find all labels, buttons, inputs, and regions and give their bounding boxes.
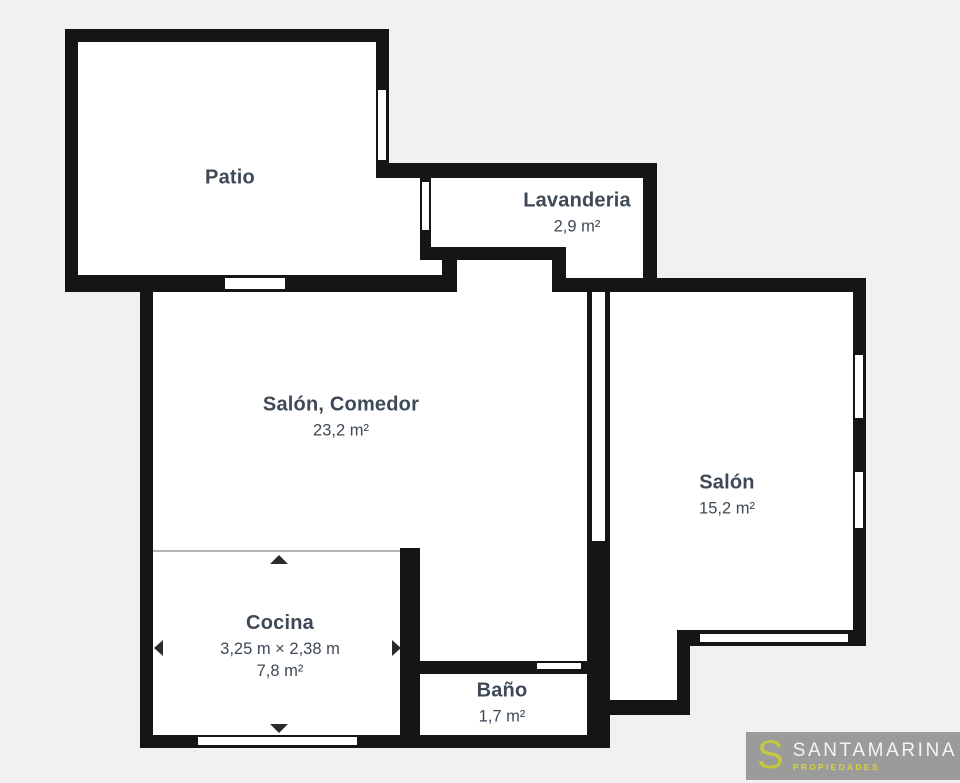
arrow-left-icon [154, 640, 163, 656]
wall-left-exterior [140, 275, 153, 748]
lavanderia-area: 2,9 m² [523, 217, 631, 238]
cocina-dimensions: 3,25 m × 2,38 m [220, 639, 340, 660]
logo-brand-name: SANTAMARINA [793, 741, 957, 760]
logo-text: SANTAMARINA PROPIEDADES [793, 741, 957, 772]
salon-area: 15,2 m² [699, 499, 755, 520]
wall-patio-left [65, 29, 78, 292]
salon-right-window-lower [855, 472, 863, 528]
floor-plan-image: { "colors": { "exterior": "#f1f1f2", "wa… [0, 0, 960, 783]
wall-salon-partition-outer [587, 290, 592, 541]
floor-plan: Patio Lavanderia 2,9 m² Salón, Comedor 2… [0, 0, 960, 783]
cocina-name: Cocina [220, 611, 340, 636]
patio-right-window [378, 90, 386, 160]
bano-name: Baño [477, 679, 528, 704]
bano-area: 1,7 m² [477, 707, 528, 728]
niche-floor [457, 260, 552, 292]
salon-name: Salón [699, 471, 755, 496]
wall-salon-partition-inner [605, 290, 610, 541]
wall-salon-top [566, 278, 866, 292]
wall-cocina-right [400, 548, 420, 735]
wall-patio-top [65, 29, 389, 42]
lavanderia-name: Lavanderia [523, 189, 631, 214]
salon-bottom-window [700, 634, 848, 642]
wall-salon-left-lower [587, 541, 610, 748]
wall-lavanderia-bottom-left [420, 247, 566, 260]
arrow-down-icon [270, 724, 288, 733]
patio-floor [78, 42, 376, 275]
bano-label: Baño 1,7 m² [477, 679, 528, 728]
cocina-label: Cocina 3,25 m × 2,38 m 7,8 m² [220, 611, 340, 681]
wall-lavanderia-right [643, 163, 657, 292]
logo-tagline: PROPIEDADES [793, 763, 957, 772]
patio-name: Patio [205, 166, 255, 191]
wall-niche-stub [442, 260, 457, 275]
salon-comedor-name: Salón, Comedor [263, 393, 419, 418]
wall-salon-right [853, 278, 866, 646]
salon-right-window-upper [855, 355, 863, 418]
salon-label: Salón 15,2 m² [699, 471, 755, 520]
bano-door [537, 663, 581, 669]
salon-comedor-label: Salón, Comedor 23,2 m² [263, 393, 419, 442]
patio-label: Patio [205, 166, 255, 191]
cocina-area: 7,8 m² [220, 661, 340, 682]
wall-lavanderia-top [376, 163, 657, 178]
logo-initial: S [757, 739, 784, 771]
wall-lavanderia-step [552, 247, 566, 292]
cocina-bottom-window [198, 737, 357, 745]
patio-bottom-window [225, 278, 285, 289]
salon-entry-floor [608, 541, 677, 703]
salon-comedor-area: 23,2 m² [263, 421, 419, 442]
lavanderia-label: Lavanderia 2,9 m² [523, 189, 631, 238]
arrow-up-icon [270, 555, 288, 564]
lavanderia-door [422, 182, 429, 230]
agency-logo: S SANTAMARINA PROPIEDADES [746, 732, 960, 780]
cocina-boundary-line [153, 550, 400, 552]
wall-entry-bottom [587, 700, 690, 715]
